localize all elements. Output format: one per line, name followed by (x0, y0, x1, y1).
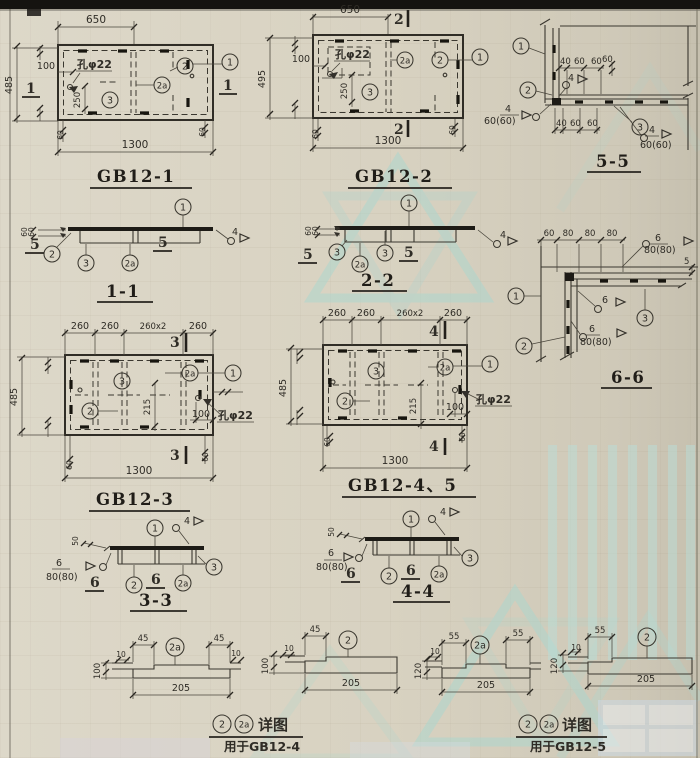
callout-1: 1 (477, 53, 483, 64)
sec55-dim-top-1: 60 (574, 57, 585, 67)
weld-hook (533, 114, 540, 121)
cut-mark: 6 (406, 563, 416, 579)
flange-plate (110, 546, 204, 550)
weld-flag-arrow (684, 237, 693, 245)
callout-3: 3 (367, 88, 373, 99)
detail-usage: 用于GB12-5 (529, 739, 606, 754)
dim-ticks (538, 237, 695, 276)
callout-2a: 2a (355, 261, 366, 271)
sec55-dim-edge: 60 (602, 55, 613, 65)
gb12-3-edge-dim: 60 (201, 452, 210, 462)
gb12-3-dim-top-3: 260 (189, 321, 207, 332)
hidden-stiffeners (386, 42, 435, 112)
callout-1: 1 (230, 369, 236, 380)
cut-mark: 6 (90, 575, 100, 591)
plate-linework (545, 25, 696, 150)
corner-blob (27, 9, 41, 16)
callout-1: 1 (152, 524, 158, 535)
d4-length: 205 (637, 674, 655, 685)
d1-length: 205 (172, 683, 190, 694)
weld-size: 6 (56, 558, 62, 569)
gb12-45-dim-v: 215 (409, 398, 419, 414)
cut-mark: 5 (303, 247, 313, 263)
d4-lip: 10 (571, 643, 581, 652)
drawing-gb12-1: 650 485 100 250 1300 60 60 孔φ22 1 2 2a 3… (4, 14, 238, 188)
flange-plate (335, 226, 475, 230)
gb12-45-dim-bottom: 1300 (382, 455, 409, 467)
callout-2: 2 (87, 407, 93, 418)
callout-2: 2 (525, 720, 531, 731)
cut-mark: 5 (158, 235, 168, 251)
ref-label: 4 (500, 230, 506, 241)
weld-size: 4 (505, 104, 511, 115)
sec66-dim-0: 60 (544, 229, 555, 239)
callout-2: 2 (345, 636, 351, 647)
gb12-45-dim-h: 100 (446, 402, 464, 413)
callout-2a: 2a (178, 580, 189, 590)
gb12-45-dim-left: 485 (278, 379, 289, 397)
detail-1: 2a 45 45 205 100 10 10 (93, 634, 244, 699)
flange-plate (68, 227, 213, 231)
weld-flag-arrow (522, 111, 531, 119)
scanned-drawing-page: 650 485 100 250 1300 60 60 孔φ22 1 2 2a 3… (0, 0, 700, 758)
gb12-3-dim-bottom: 1300 (126, 465, 153, 477)
bar-outline (442, 664, 530, 678)
weld-size: 6 (328, 548, 334, 559)
callout-2a: 2a (474, 641, 486, 652)
ref-label: 4 (232, 227, 238, 238)
ref-flag-arrow (450, 508, 459, 516)
weld-flag-arrow (662, 130, 671, 138)
weld-size: 6 (589, 324, 595, 335)
drawing-gb12-2: 650 495 100 250 1300 60 60 孔φ22 1 2 2a 3… (257, 4, 488, 188)
weld-size: 4 (568, 73, 574, 84)
callout-1: 1 (408, 515, 414, 526)
gb12-3-dim-h: 100 (192, 409, 210, 420)
callout-2: 2 (182, 62, 188, 73)
web-linework (80, 231, 200, 243)
d4-height: 120 (550, 658, 560, 674)
d3-end-left: 55 (449, 632, 460, 642)
drawing-sheet: 650 485 100 250 1300 60 60 孔φ22 1 2 2a 3… (0, 0, 700, 758)
callout-2a: 2a (440, 364, 451, 374)
cut-mark: 6 (151, 572, 161, 588)
d3-end-right: 55 (513, 629, 524, 639)
gb12-2-dim-left: 495 (257, 70, 268, 88)
cut-mark: 5 (404, 245, 414, 261)
callout-2: 2 (342, 397, 348, 408)
sec66-dim-3: 80 (607, 229, 618, 239)
side-dim: 50 (71, 536, 80, 546)
tab-lines (285, 656, 305, 662)
section-mark-left: 1 (26, 81, 36, 97)
hole-mark-small (78, 388, 82, 392)
callout-2a: 2a (169, 643, 181, 654)
sec55-title: 5-5 (596, 152, 630, 171)
hole-mark-small (190, 74, 194, 78)
drawing-sec-2-2: 60 60 4 1 3 2a 3 5 5 2-2 (298, 195, 517, 291)
callout-2: 2 (219, 720, 225, 731)
sec33-title: 3-3 (139, 591, 173, 610)
callout-3b: 3 (382, 249, 388, 260)
gb12-45-edge-dim: 60 (458, 432, 467, 442)
cut-mark: 5 (30, 237, 40, 253)
detail-caption: 详图 (562, 716, 592, 734)
bleed-table-fragment-right (598, 700, 698, 756)
detail-label-left: 2 2a 详图 用于GB12-4 (209, 715, 303, 754)
gb12-45-dim-top-1: 260 (357, 308, 375, 319)
callout-2a: 2a (185, 370, 196, 380)
weld-flag-arrow (86, 562, 95, 570)
bleed-fragment-left (60, 738, 210, 758)
callout-1: 1 (518, 42, 524, 53)
sec66-gap-dim: 5 (684, 257, 689, 267)
weld-flag-arrow (578, 75, 587, 83)
callout-1: 1 (406, 199, 412, 210)
detail-usage: 用于GB12-4 (223, 739, 300, 754)
d2-lip: 10 (284, 644, 294, 653)
sec55-dim-top-2: 60 (591, 57, 602, 67)
callout-3: 3 (211, 563, 217, 574)
ref-flag-arrow (240, 234, 249, 242)
sec66-dim-2: 80 (585, 229, 596, 239)
gb12-1-dim-inner: 250 (73, 92, 83, 108)
gb12-2-hole-label: 孔φ22 (335, 48, 370, 61)
callout-2: 2 (525, 86, 531, 97)
callout-2a: 2a (239, 721, 250, 731)
callout-1: 1 (180, 203, 186, 214)
gb12-45-title: GB12-4、5 (348, 476, 457, 495)
gb12-3-dim-top-0: 260 (71, 321, 89, 332)
weld-length: 60(60) (484, 116, 516, 127)
dimension-lines (12, 21, 213, 156)
weld-length: 80(80) (316, 562, 348, 573)
corner-weld-fill (552, 98, 561, 105)
drawing-sec-4-4: 50 4 6 80(80) 1 2 2a 3 6 6 4-4 (316, 507, 478, 602)
callout-3: 3 (637, 123, 643, 134)
hole-mark-small (443, 73, 447, 77)
side-dim: 50 (327, 527, 336, 537)
section-mark-top: 3 (170, 335, 180, 351)
sec22-title: 2-2 (361, 271, 395, 290)
ref-hook (173, 525, 180, 532)
ref-flag-arrow (194, 517, 203, 525)
gb12-3-dim-top-1: 260 (101, 321, 119, 332)
gb12-1-hole-label: 孔φ22 (77, 58, 112, 71)
callout-3: 3 (119, 377, 125, 388)
callout-3: 3 (642, 314, 648, 325)
gb12-3-title: GB12-3 (96, 490, 174, 509)
gb12-3-dim-v: 215 (143, 399, 153, 415)
weld-flag-arrow (617, 329, 626, 337)
sec55-dim-bot-2: 60 (587, 119, 598, 129)
sec55-dim-bot-1: 60 (570, 119, 581, 129)
gb12-3-dim-left: 485 (9, 388, 20, 406)
drawing-gb12-45: 260 260 260x2 260 485 215 100 1300 60 60… (278, 308, 512, 497)
weld-flag-arrow (616, 298, 625, 306)
section-mark-top: 2 (394, 12, 404, 28)
section-mark-bottom: 4 (429, 439, 439, 455)
weld-size: 4 (649, 125, 655, 136)
gb12-45-edge-dim: 60 (323, 437, 332, 447)
sec66-title: 6-6 (611, 368, 645, 387)
leader-lines (524, 244, 668, 344)
ref-hook (494, 241, 501, 248)
drawing-sec-1-1: 60 60 4 1 2 3 2a 5 5 1-1 (20, 199, 249, 302)
d2-height: 100 (261, 658, 271, 674)
weld-length: 60(60) (640, 140, 672, 151)
section-mark-bottom: 2 (394, 122, 404, 138)
tab-lines (112, 663, 241, 669)
gb12-45-hole-label: 孔φ22 (476, 393, 511, 406)
d3-lip: 10 (430, 647, 440, 656)
d2-length: 205 (342, 678, 360, 689)
d1-lip: 10 (231, 649, 241, 658)
d4-end-left: 55 (595, 626, 606, 636)
section-mark-bottom: 3 (170, 448, 180, 464)
gb12-2-dim-top: 650 (340, 4, 360, 16)
callout-2a: 2a (125, 260, 136, 270)
callout-2: 2 (437, 56, 443, 67)
callout-3: 3 (83, 259, 89, 270)
sec11-title: 1-1 (106, 282, 140, 301)
corner-weld-fill (565, 273, 574, 281)
gb12-1-title: GB12-1 (97, 167, 175, 186)
callout-2: 2 (521, 342, 527, 353)
ref-label: 4 (440, 507, 446, 518)
weld-hook (595, 306, 602, 313)
gb12-1-dim-top: 650 (86, 14, 106, 26)
drawing-sec-6-6: 60 80 80 80 5 6 80(80) 6 6 80(80) 1 2 3 … (508, 229, 698, 388)
section-mark-top: 4 (429, 324, 439, 340)
weld-size: 6 (602, 295, 608, 306)
gb12-45-dim-top-0: 260 (328, 308, 346, 319)
callout-2a: 2a (400, 57, 411, 67)
break-marks (536, 283, 686, 362)
side-dim: 60 (27, 227, 36, 237)
callout-3: 3 (373, 367, 379, 378)
callout-3: 3 (467, 554, 473, 565)
gb12-3-edge-dim: 60 (65, 460, 74, 470)
ref-flag-arrow (508, 237, 517, 245)
callout-2a: 2a (434, 571, 445, 581)
ref-label: 4 (184, 516, 190, 527)
gb12-45-dim-top-2: 260x2 (397, 309, 424, 319)
d1-height: 100 (93, 663, 103, 679)
callout-1: 1 (227, 58, 233, 69)
dim-ticks (14, 24, 216, 155)
bleed-stripes (548, 445, 695, 660)
weld-size: 6 (655, 233, 661, 244)
hole-mark (453, 388, 458, 393)
weld-hook (356, 555, 363, 562)
weld-length: 80(80) (46, 572, 78, 583)
callout-2a: 2a (544, 721, 555, 731)
d2-end-left: 45 (310, 625, 321, 635)
d3-height: 120 (414, 663, 424, 679)
dimension-lines (286, 316, 467, 472)
section-mark-right: 1 (223, 78, 233, 94)
cut-mark: 6 (346, 566, 356, 582)
callout-3: 3 (107, 96, 113, 107)
weld-flag-arrow (344, 553, 353, 561)
callout-2a: 2a (157, 82, 168, 92)
d1-end-right: 45 (214, 634, 225, 644)
sec55-dim-bot-0: 40 (556, 119, 567, 129)
drawing-gb12-3: 260 260 260x2 260 485 215 100 1300 60 60… (9, 321, 254, 511)
dim-ticks (19, 330, 231, 481)
weld-length: 80(80) (644, 245, 676, 256)
callout-1: 1 (513, 292, 519, 303)
gb12-1-dim-inset: 100 (37, 61, 55, 72)
drawing-sec-3-3: 50 4 6 80(80) 1 2 2a 3 6 6 3-3 (46, 516, 222, 611)
flange-plate (365, 537, 459, 541)
gb12-3-hole-label: 孔φ22 (218, 409, 253, 422)
gb12-1-dim-left: 485 (4, 76, 15, 94)
callout-1: 1 (487, 360, 493, 371)
gb12-1-edge-dim: 60 (198, 127, 207, 137)
callout-2: 2 (644, 633, 650, 644)
weld-length: 80(80) (580, 337, 612, 348)
sec55-dim-top-0: 40 (560, 57, 571, 67)
ref-hook (429, 516, 436, 523)
gb12-2-dim-inset: 100 (292, 54, 310, 65)
d3-length: 205 (477, 680, 495, 691)
gb12-2-title: GB12-2 (355, 167, 433, 186)
callout-2: 2 (386, 572, 392, 583)
callout-2: 2 (49, 250, 55, 261)
gb12-3-dim-top-2: 260x2 (140, 322, 167, 332)
callout-3a: 3 (334, 248, 340, 259)
gb12-1-edge-dim: 60 (56, 130, 65, 140)
side-dim: 60 (311, 226, 320, 236)
detail-caption: 详图 (258, 716, 288, 734)
sec44-title: 4-4 (401, 582, 435, 601)
d1-lip: 10 (116, 650, 126, 659)
gb12-1-dim-bottom: 1300 (122, 139, 149, 151)
weld-hook (100, 564, 107, 571)
callout-2: 2 (131, 581, 137, 592)
gb12-2-edge-dim: 60 (311, 129, 320, 139)
sec66-dim-1: 80 (563, 229, 574, 239)
bar-outline (133, 665, 230, 678)
ref-hook (228, 238, 235, 245)
gb12-2-edge-dim: 60 (448, 125, 457, 135)
gb12-45-dim-top-3: 260 (444, 308, 462, 319)
gb12-2-dim-inner: 250 (340, 83, 350, 99)
d1-end-left: 45 (138, 634, 149, 644)
bleed-fragment-mid (350, 742, 470, 758)
hidden-stiffeners (75, 362, 186, 428)
drawing-sec-5-5: 40 60 60 40 60 60 60 4 60(60) 4 4 60(60)… (484, 19, 696, 172)
